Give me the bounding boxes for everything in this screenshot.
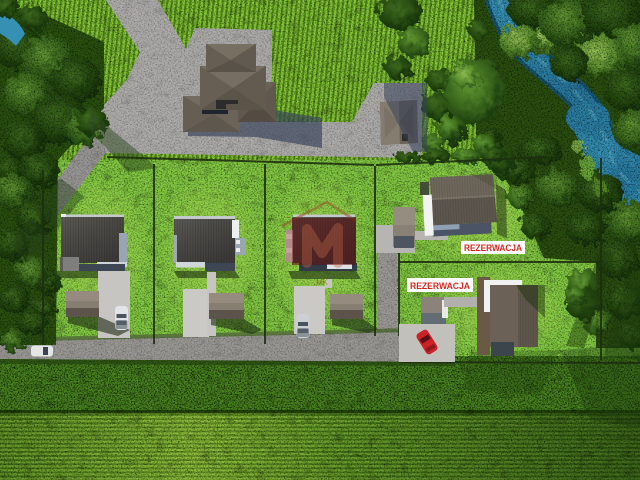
svg-text:REZERWACJA: REZERWACJA [464, 243, 522, 253]
svg-text:MK: MK [316, 278, 329, 287]
svg-text:REZERWACJA: REZERWACJA [410, 281, 470, 291]
